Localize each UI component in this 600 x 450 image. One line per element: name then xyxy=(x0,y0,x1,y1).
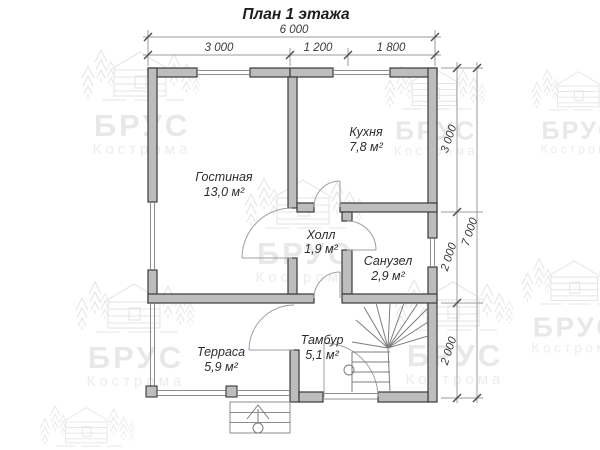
walls xyxy=(148,68,437,402)
room-area-hall: 1,9 м² xyxy=(304,242,338,256)
window-right-bathroom xyxy=(431,238,435,267)
window-top-living xyxy=(197,71,250,75)
watermark-city-text: Кострома xyxy=(87,373,186,390)
watermark-logo: БРУС Кострома xyxy=(532,70,600,156)
room-labels: Гостиная 13,0 м² Кухня 7,8 м² Холл 1,9 м… xyxy=(195,125,412,374)
terrace-post xyxy=(146,386,157,397)
room-label-kitchen: Кухня xyxy=(349,125,383,139)
entrance-threshold xyxy=(323,394,378,400)
doors xyxy=(242,181,378,399)
watermark-brand-text: БРУС xyxy=(542,118,600,145)
dim-top-segment: 1 200 xyxy=(304,42,333,54)
watermark-city-text: Кострома xyxy=(93,141,192,158)
watermark-city-text: Кострома xyxy=(540,142,600,156)
watermark-brand-text: БРУС xyxy=(88,340,184,375)
porch-steps-icon xyxy=(230,402,290,433)
watermark-logo: БРУС Кострома xyxy=(522,259,600,356)
room-area-terrace: 5,9 м² xyxy=(204,360,238,374)
watermark-city-text: Кострома xyxy=(532,341,600,356)
watermark-brand-text: БРУС xyxy=(533,311,600,342)
watermark-logo xyxy=(40,406,135,446)
window-top-kitchen xyxy=(333,71,390,75)
watermark-logo: БРУС Кострома xyxy=(82,50,200,158)
room-area-living-room: 13,0 м² xyxy=(204,185,245,199)
watermark-city-text: Кострома xyxy=(406,371,505,388)
room-label-living-room: Гостиная xyxy=(195,170,252,184)
room-area-kitchen: 7,8 м² xyxy=(349,140,383,154)
dimension-top: 6 000 3 000 1 200 1 800 xyxy=(143,24,441,66)
door-vestibule-terrace xyxy=(249,305,294,350)
dim-total-width: 6 000 xyxy=(280,24,309,36)
room-label-terrace: Терраса xyxy=(197,345,245,359)
dim-top-segment: 1 800 xyxy=(377,42,406,54)
room-label-bathroom: Санузел xyxy=(364,254,413,268)
dim-top-segment: 3 000 xyxy=(205,42,234,54)
room-label-vestibule: Тамбур xyxy=(301,333,344,347)
terrace-post xyxy=(226,386,237,397)
entry-arrow-icon xyxy=(247,405,269,423)
page-title: План 1 этажа xyxy=(242,6,350,23)
floor-plan-drawing: БРУС Кострома БРУС Кострома БРУС Костром… xyxy=(0,0,600,450)
dim-right-segment: 2 000 xyxy=(439,241,460,274)
window-left-living xyxy=(151,202,155,270)
floor-plan-page: БРУС Кострома БРУС Кострома БРУС Костром… xyxy=(0,0,600,450)
room-area-bathroom: 2,9 м² xyxy=(370,269,405,283)
watermark-brand-text: БРУС xyxy=(94,108,190,143)
room-area-vestibule: 5,1 м² xyxy=(305,348,339,362)
room-label-hall: Холл xyxy=(306,228,336,242)
